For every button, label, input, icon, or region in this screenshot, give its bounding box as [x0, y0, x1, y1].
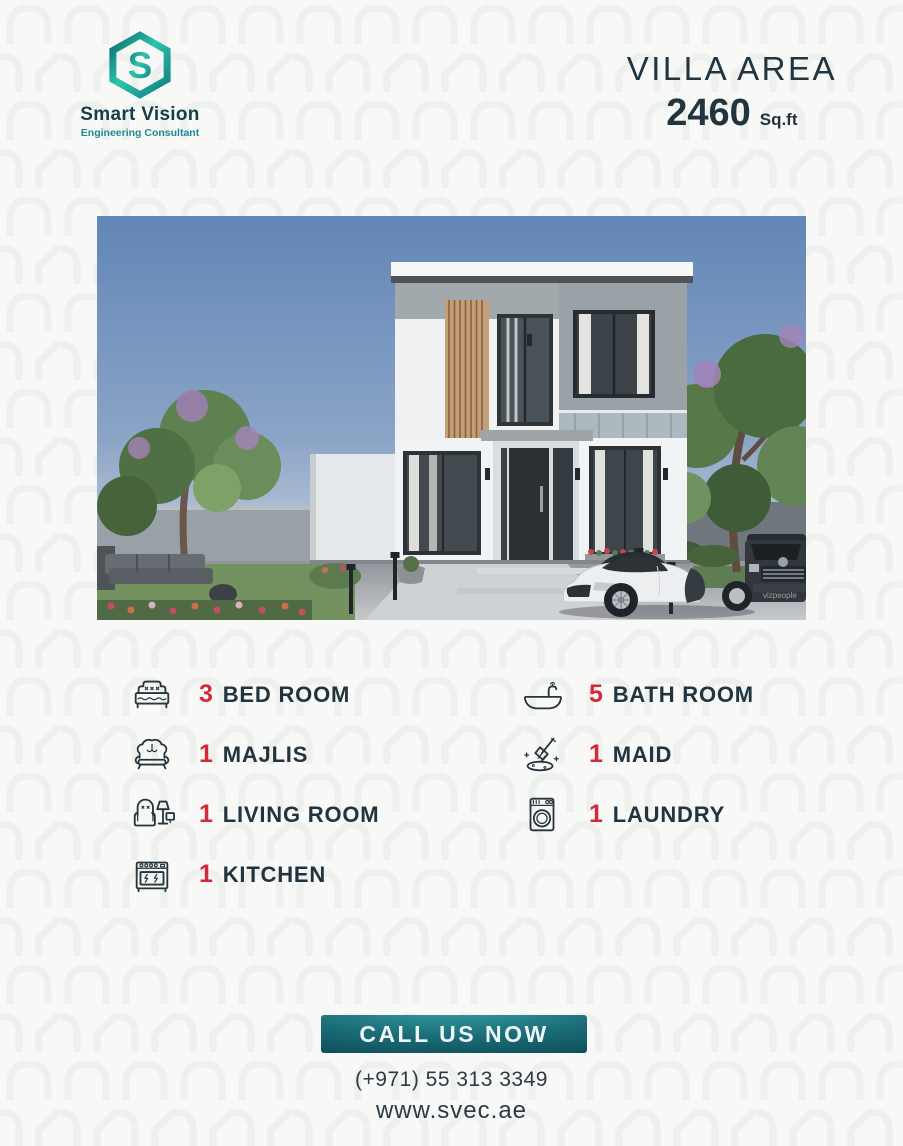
feature-bedroom: 3BED ROOM: [128, 664, 379, 724]
feature-label: LAUNDRY: [613, 802, 725, 827]
feature-count: 1: [199, 740, 214, 768]
feature-count: 3: [199, 680, 214, 708]
photo-watermark: vizpeople: [763, 591, 797, 600]
brand-tagline: Engineering Consultant: [60, 127, 220, 139]
stove-icon: [128, 853, 176, 895]
armchair-lamp-icon: [128, 793, 176, 835]
feature-label: LIVING ROOM: [223, 802, 380, 827]
feature-label: KITCHEN: [223, 862, 326, 887]
flyer-page: S Smart Vision Engineering Consultant VI…: [0, 0, 903, 1146]
dark-car: vizpeople: [745, 534, 806, 602]
feature-label: MAID: [613, 742, 672, 767]
brand-name: Smart Vision: [60, 104, 220, 126]
phone-number[interactable]: (+971) 55 313 3349: [0, 1068, 903, 1092]
feature-living-room: 1LIVING ROOM: [128, 784, 379, 844]
villa-area-block: VILLA AREA 2460 Sq.ft: [627, 50, 837, 135]
feature-count: 1: [199, 860, 214, 888]
smart-vision-logo-icon: S: [105, 30, 175, 100]
feature-kitchen: 1KITCHEN: [128, 844, 379, 904]
features-right-column: 5BATH ROOM 1MAID: [518, 664, 754, 844]
mop-icon: [518, 733, 566, 775]
villa-area-value: 2460: [666, 92, 751, 135]
feature-count: 1: [589, 740, 604, 768]
feature-laundry: 1LAUNDRY: [518, 784, 754, 844]
feature-count: 1: [589, 800, 604, 828]
feature-label: BED ROOM: [223, 682, 350, 707]
svg-text:S: S: [128, 45, 153, 86]
feature-bathroom: 5BATH ROOM: [518, 664, 754, 724]
feature-count: 1: [199, 800, 214, 828]
website-url[interactable]: www.svec.ae: [0, 1097, 903, 1125]
sofa-icon: [128, 733, 176, 775]
bathtub-icon: [518, 673, 566, 715]
feature-label: BATH ROOM: [613, 682, 754, 707]
villa-photo: vizpeople: [97, 216, 806, 620]
bed-icon: [128, 673, 176, 715]
feature-label: MAJLIS: [223, 742, 308, 767]
feature-maid: 1MAID: [518, 724, 754, 784]
contact-block: (+971) 55 313 3349 www.svec.ae: [0, 1068, 903, 1125]
feature-majlis: 1MAJLIS: [128, 724, 379, 784]
features-left-column: 3BED ROOM 1MAJLIS: [128, 664, 379, 904]
call-us-now-button[interactable]: CALL US NOW: [321, 1015, 587, 1053]
washing-machine-icon: [518, 793, 566, 835]
brand-block: S Smart Vision Engineering Consultant: [60, 30, 220, 139]
feature-count: 5: [589, 680, 604, 708]
villa-area-label: VILLA AREA: [627, 50, 837, 88]
villa-area-unit: Sq.ft: [760, 110, 798, 130]
